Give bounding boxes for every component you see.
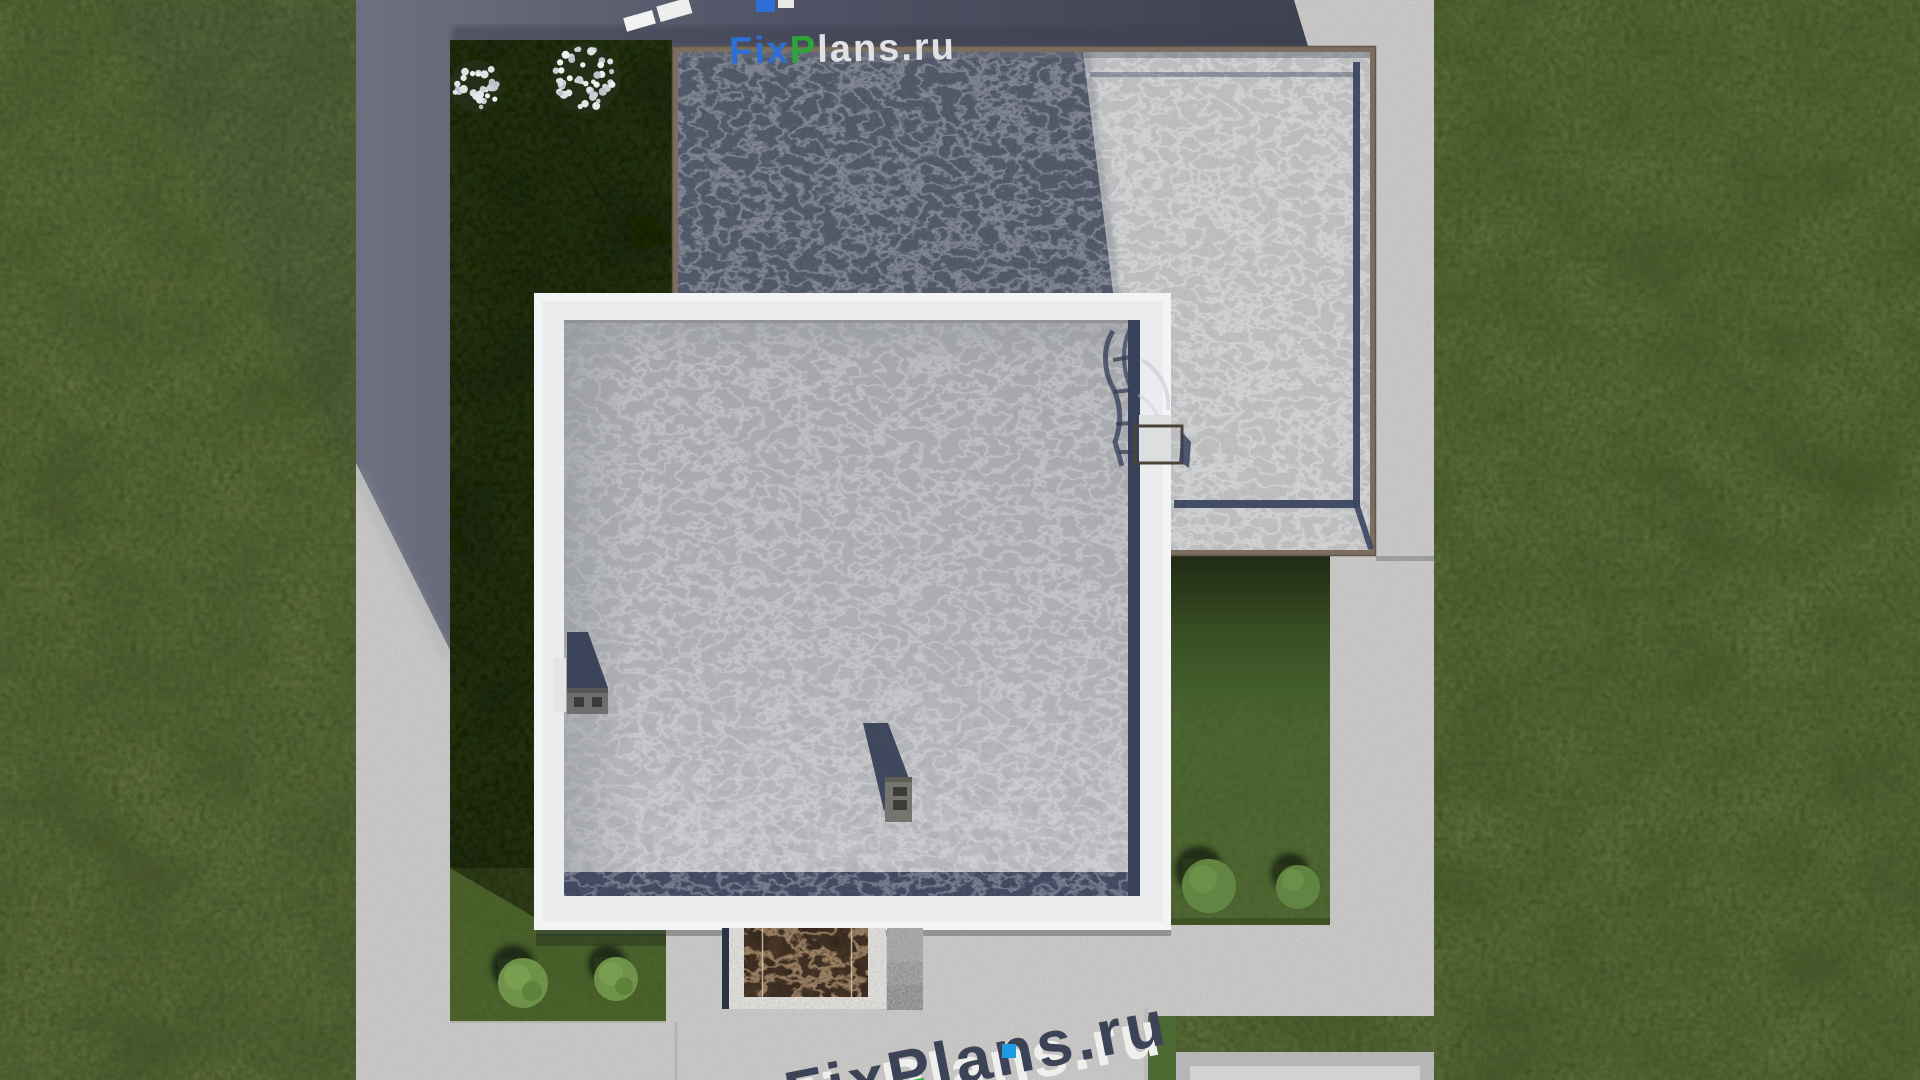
svg-text:FixPlans.ru: FixPlans.ru [729, 26, 957, 73]
